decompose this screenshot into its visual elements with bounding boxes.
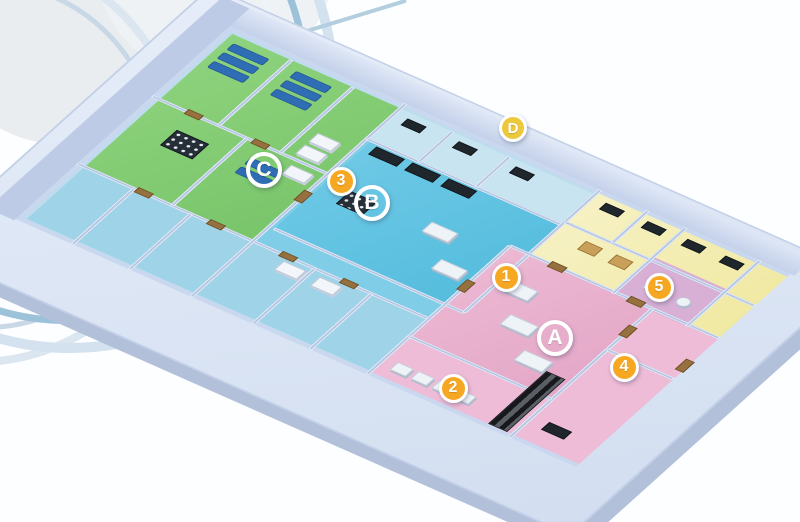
zone-marker-a: A bbox=[537, 320, 573, 356]
point-marker-4: 4 bbox=[610, 353, 639, 382]
zone-marker-b: B bbox=[354, 185, 390, 221]
point-marker-3: 3 bbox=[327, 167, 356, 196]
floor-plan-illustration: A B C D 1 2 3 4 5 bbox=[0, 0, 800, 522]
point-marker-5: 5 bbox=[645, 273, 674, 302]
point-marker-1: 1 bbox=[492, 263, 521, 292]
zone-marker-d: D bbox=[499, 114, 527, 142]
point-marker-2: 2 bbox=[439, 374, 468, 403]
zone-marker-c: C bbox=[246, 152, 282, 188]
